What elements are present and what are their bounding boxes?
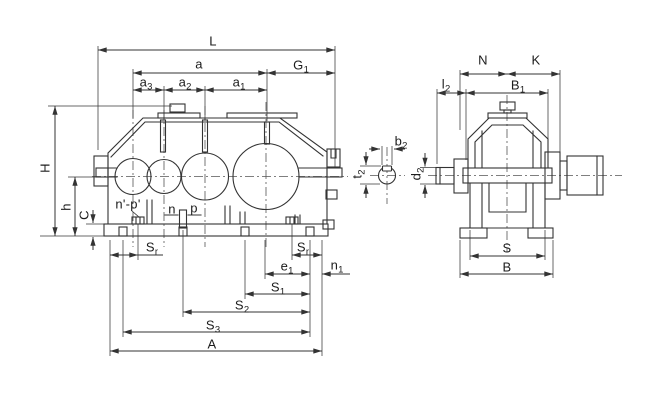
flange-bolt-right — [286, 217, 298, 224]
dim-label-K: K — [532, 53, 541, 67]
dim-label-a3: a3 — [140, 75, 153, 89]
dim-label-n1: n1 — [331, 258, 344, 272]
dim-label-e1: e1 — [281, 259, 294, 273]
gearbox-dimension-drawing: L a G1 a3 a2 a1 H h C n'-p' n p Sr Sr e1… — [0, 0, 645, 400]
housing-inner-contour — [111, 122, 323, 157]
dim-label-Sr-right: Sr — [297, 240, 309, 254]
dim-label-S1: S1 — [271, 280, 285, 294]
dim-label-B1: B1 — [511, 78, 525, 92]
dim-label-h: h — [59, 203, 73, 211]
dim-label-d2: d2 — [409, 168, 423, 181]
drawing-linework — [0, 0, 645, 400]
inspection-cover-right — [227, 113, 297, 118]
dim-label-Sr-left: Sr — [146, 240, 158, 254]
base-plate — [104, 224, 328, 236]
input-shaft-boss — [454, 159, 468, 193]
dim-label-np-prime: n'-p' — [115, 197, 140, 211]
dim-label-t2: t2 — [350, 169, 364, 178]
dim-label-L: L — [209, 34, 217, 48]
end-view-foot-left — [460, 228, 487, 238]
dim-label-S3: S3 — [206, 318, 220, 332]
end-view-plug — [500, 102, 515, 110]
dim-label-H: H — [38, 163, 52, 173]
foundation-bolt-1 — [119, 227, 127, 236]
cover-stud-1 — [161, 120, 166, 152]
dim-label-S2: S2 — [235, 298, 249, 312]
breather-plug — [170, 104, 185, 112]
dim-label-b2: b2 — [395, 134, 408, 148]
dim-label-G1: G1 — [293, 58, 309, 72]
flange-left-tab — [96, 168, 108, 177]
end-view-cover-pad — [488, 113, 527, 118]
dim-label-B: B — [503, 260, 512, 274]
dim-label-a: a — [195, 57, 203, 71]
dim-label-l2: l2 — [442, 77, 451, 91]
side-bolt-upper — [326, 190, 337, 199]
cover-stud-3 — [265, 122, 270, 144]
end-view-housing — [436, 102, 603, 238]
side-view-housing — [94, 104, 342, 236]
dim-label-n: n — [168, 202, 176, 216]
end-view-foot-right — [528, 228, 553, 238]
dim-label-a1: a1 — [233, 75, 246, 89]
dim-label-N: N — [478, 53, 488, 67]
flange-bolt-left — [132, 217, 144, 224]
dome-inner — [475, 125, 541, 168]
dim-label-C: C — [77, 210, 91, 220]
dim-label-a2: a2 — [179, 75, 192, 89]
foundation-bolt-3 — [241, 227, 249, 236]
lower-housing-walls — [470, 183, 545, 228]
dim-label-p: p — [190, 201, 198, 215]
foundation-bolt-4 — [306, 227, 314, 236]
dim-label-A: A — [208, 337, 217, 351]
dim-label-S: S — [503, 241, 512, 255]
dowel-pin — [180, 210, 187, 228]
flange-right-tab — [327, 168, 342, 177]
